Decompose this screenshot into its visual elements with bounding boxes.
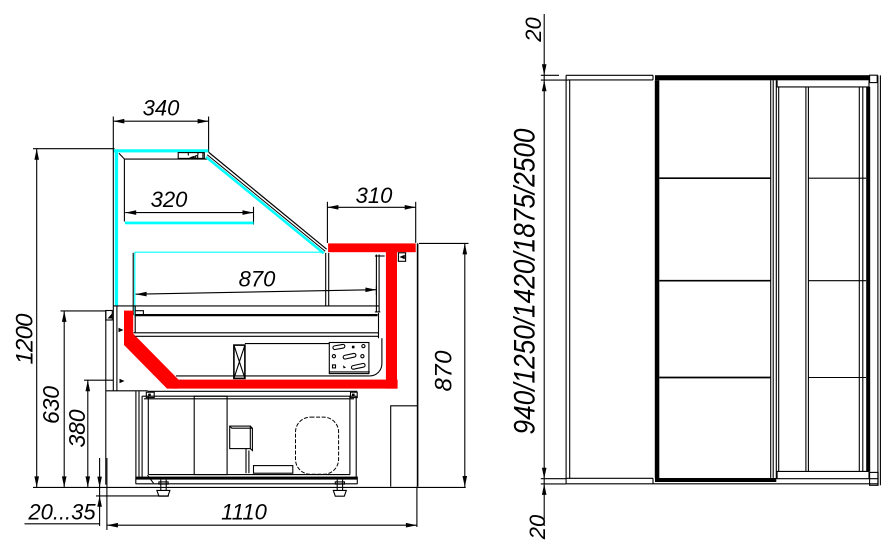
svg-text:870: 870: [239, 267, 276, 292]
svg-text:320: 320: [151, 187, 188, 212]
svg-text:630: 630: [38, 386, 64, 424]
svg-text:20: 20: [525, 514, 550, 540]
svg-text:20...35: 20...35: [27, 500, 96, 525]
svg-text:940/1250/1420/1875/2500: 940/1250/1420/1875/2500: [509, 128, 542, 434]
svg-text:20: 20: [521, 17, 546, 43]
svg-text:1200: 1200: [12, 313, 39, 365]
svg-text:380: 380: [64, 409, 90, 447]
svg-text:310: 310: [356, 183, 393, 208]
svg-text:340: 340: [143, 96, 180, 121]
svg-text:870: 870: [431, 350, 458, 392]
svg-text:1110: 1110: [221, 500, 267, 525]
